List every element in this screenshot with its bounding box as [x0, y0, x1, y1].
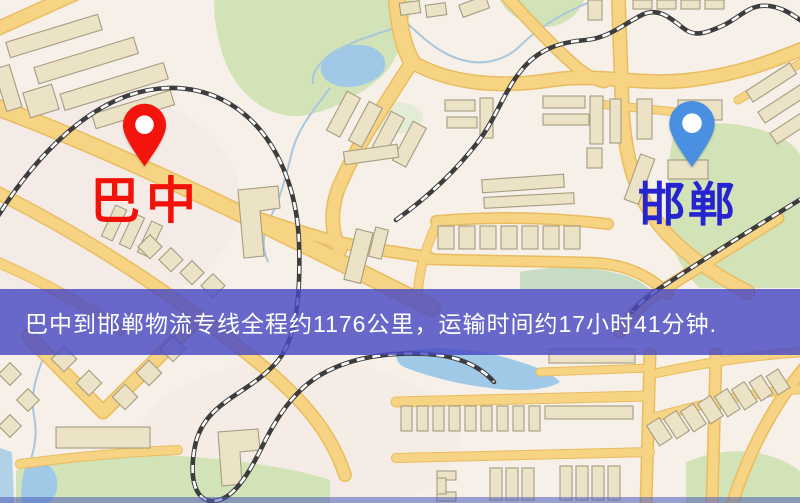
origin-marker [122, 102, 167, 168]
map-screenshot: 巴中 邯郸 巴中到邯郸物流专线全程约1176公里，运输时间约17小时41分钟. [0, 0, 800, 503]
destination-city-label: 邯郸 [638, 181, 738, 228]
route-info-text: 巴中到邯郸物流专线全程约1176公里，运输时间约17小时41分钟. [25, 305, 717, 339]
basemap [0, 0, 800, 503]
destination-pin-icon [668, 100, 716, 168]
origin-city-label: 巴中 [90, 176, 202, 226]
bottom-edge-strip [0, 497, 800, 503]
origin-pin-icon [122, 102, 167, 168]
destination-marker [668, 100, 716, 168]
route-info-banner: 巴中到邯郸物流专线全程约1176公里，运输时间约17小时41分钟. [0, 289, 800, 355]
